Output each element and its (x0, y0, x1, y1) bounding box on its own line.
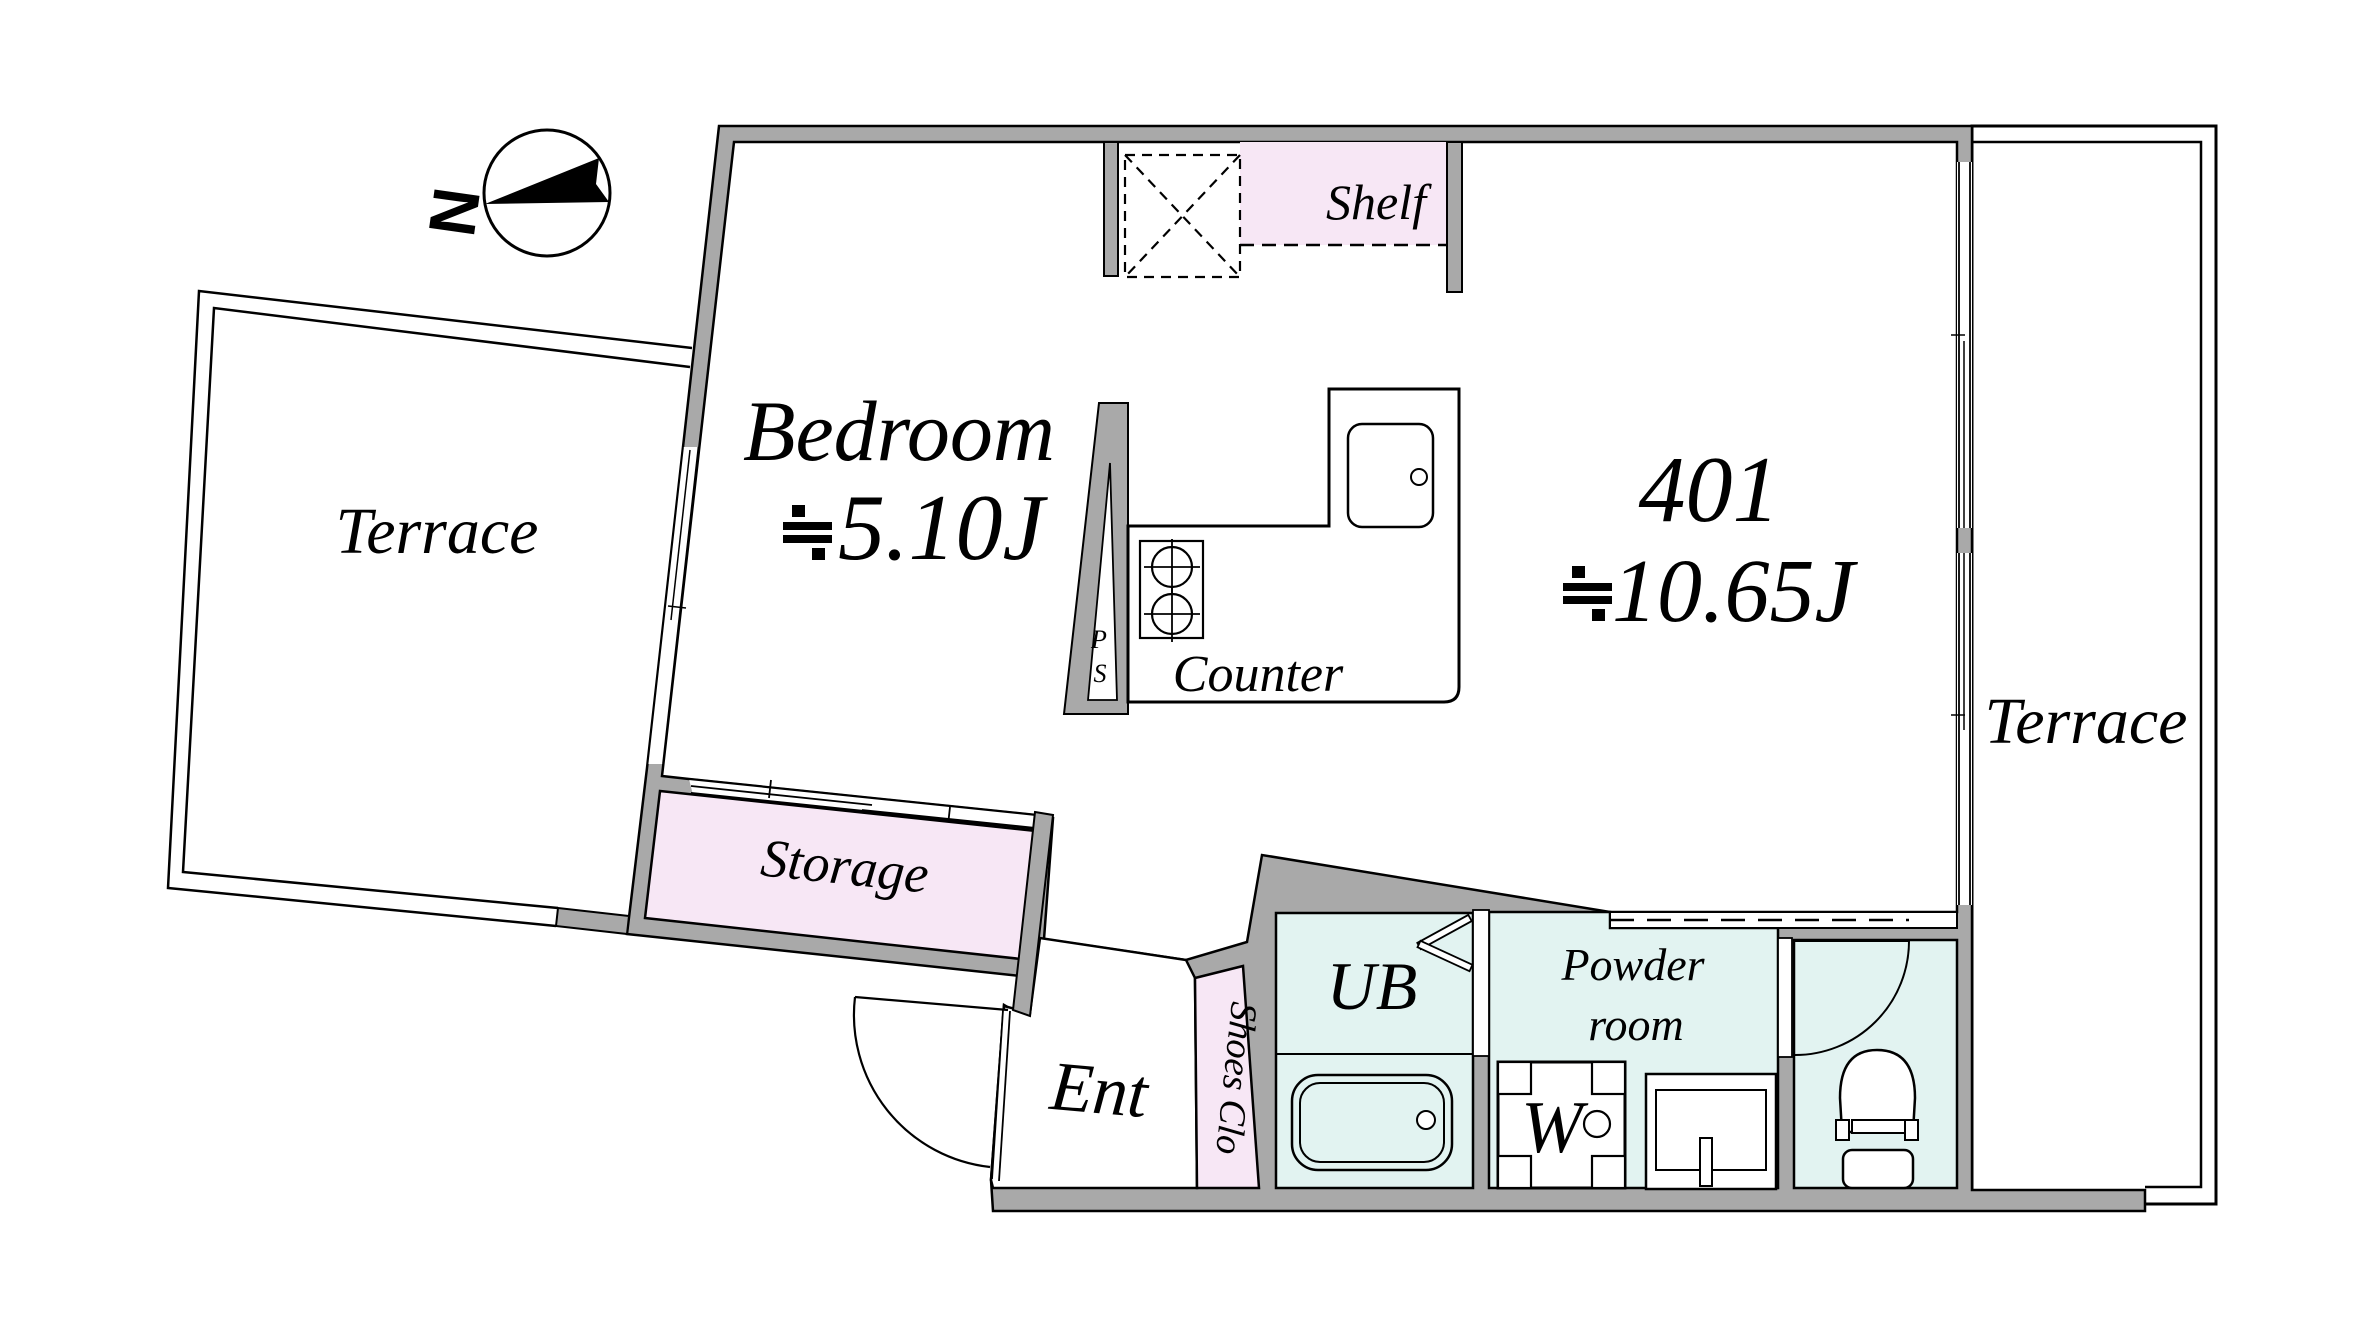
svg-text:10.65J: 10.65J (1612, 542, 1859, 641)
svg-text:Counter: Counter (1173, 646, 1344, 703)
svg-text:W: W (1521, 1087, 1589, 1169)
svg-text:Bedroom: Bedroom (743, 383, 1055, 479)
svg-text:Shelf: Shelf (1326, 174, 1432, 230)
svg-text:UB: UB (1327, 948, 1418, 1024)
svg-text:401: 401 (1639, 438, 1780, 542)
svg-text:room: room (1588, 999, 1683, 1050)
svg-text:S: S (1094, 659, 1107, 688)
svg-text:N: N (414, 183, 494, 241)
svg-text:P: P (1090, 625, 1107, 654)
svg-text:Ent: Ent (1046, 1048, 1152, 1133)
svg-text:Terrace: Terrace (336, 495, 539, 568)
svg-text:Terrace: Terrace (1985, 685, 2188, 758)
svg-text:5.10J: 5.10J (838, 476, 1049, 580)
svg-text:Powder: Powder (1560, 939, 1705, 990)
